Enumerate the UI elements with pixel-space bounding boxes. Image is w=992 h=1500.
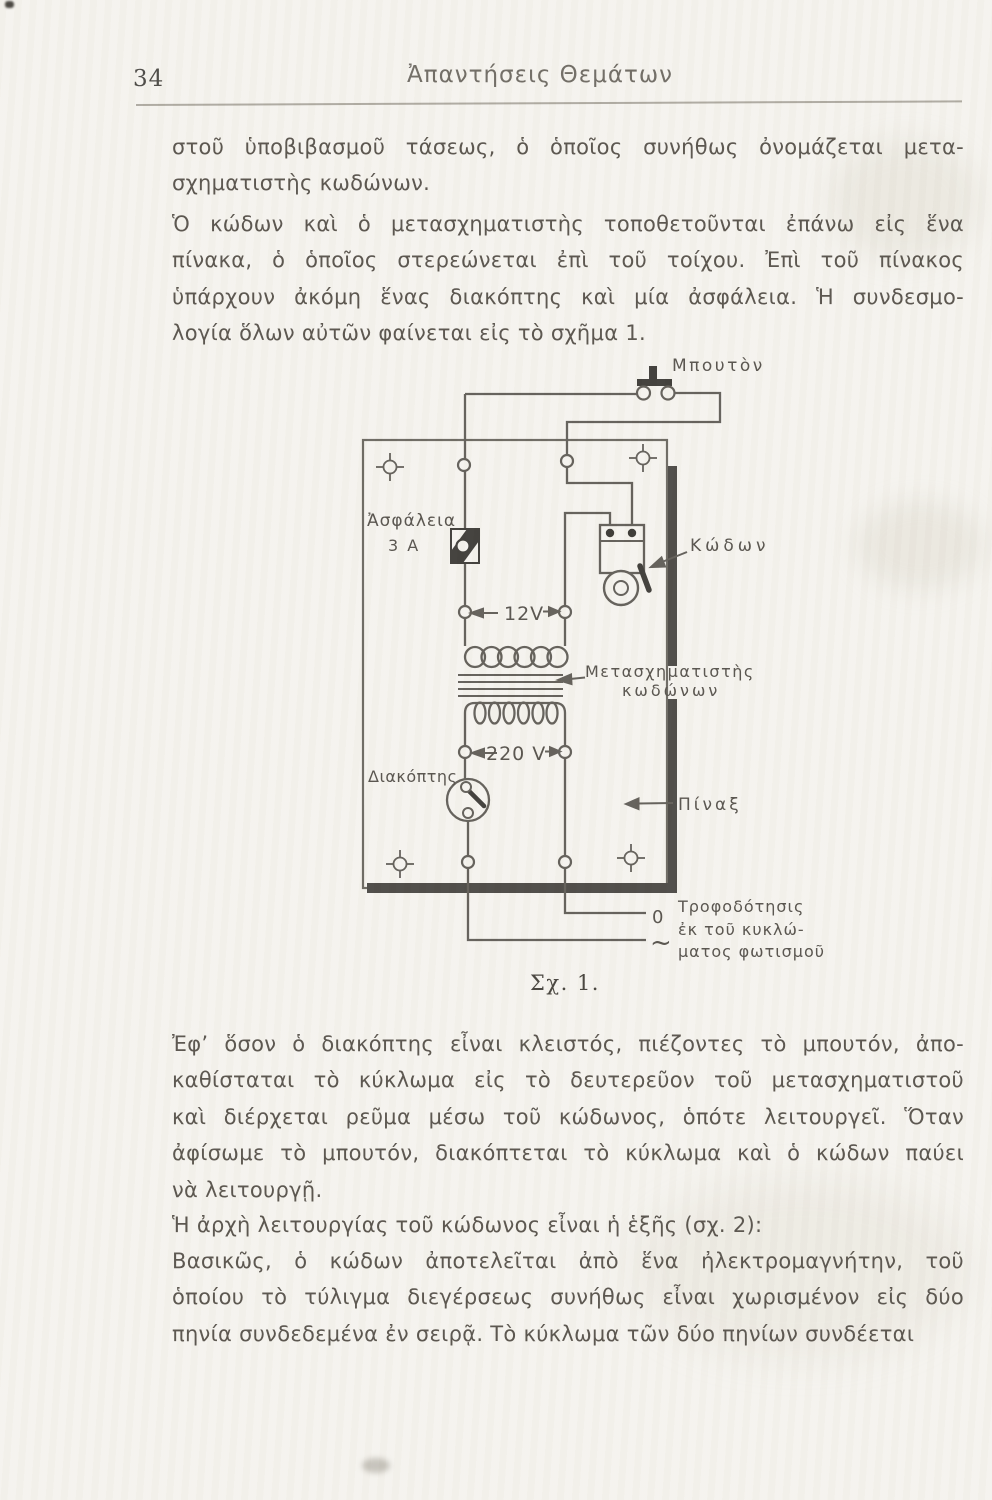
label-supply-line1: Τροφοδότησις xyxy=(677,897,804,916)
fuse-symbol xyxy=(451,529,479,563)
screw-icon xyxy=(629,444,657,472)
label-switch: Διακόπτης xyxy=(368,767,457,786)
screw-icon xyxy=(386,850,414,878)
label-primary-voltage: 220 V xyxy=(486,743,546,765)
scan-smudge xyxy=(362,1458,390,1473)
transformer-symbol xyxy=(458,647,568,724)
transformer-core xyxy=(458,675,563,696)
panel-edge-right-lower xyxy=(668,699,677,892)
label-supply-line3: ματος φωτισμοῦ xyxy=(678,942,825,961)
text-line: ὁποίου τὸ τύλιγμα διεγέρσεως συνήθως εἶν… xyxy=(172,1279,964,1315)
text-line: καθίσταται τὸ κύκλωμα εἰς τὸ δευτερεῦον … xyxy=(172,1062,964,1098)
text-line: Ἐφ’ ὅσον ὁ διακόπτης εἶναι κλειστός, πιέ… xyxy=(172,1026,964,1062)
text-line: καὶ διέρχεται ρεῦμα μέσω τοῦ κώδωνος, ὁπ… xyxy=(172,1099,964,1135)
label-secondary-voltage: 12V xyxy=(504,603,544,625)
text-line: στοῦ ὑποβιβασμοῦ τάσεως, ὁ ὁποῖος συνήθω… xyxy=(172,129,964,165)
label-fuse: Ἀσφάλεια xyxy=(367,511,456,531)
book-page: 34 Ἀπαντήσεις Θεμάτων στοῦ ὑποβιβασμοῦ τ… xyxy=(0,0,992,1500)
secondary-coil xyxy=(465,647,568,667)
label-supply-line2: ἐκ τοῦ κυκλώ- xyxy=(678,920,805,939)
paragraph-5: Βασικῶς, ὁ κώδων ἀποτελεῖται ἀπὸ ἕνα ἠλε… xyxy=(172,1243,964,1352)
text-line: Ἡ ἀρχὴ λειτουργίας τοῦ κώδωνος εἶναι ἡ ἑ… xyxy=(172,1207,964,1243)
paragraph-2: Ὁ κώδων καὶ ὁ μετασχηματιστὴς τοποθετοῦν… xyxy=(172,206,964,352)
label-transformer-line2: κωδώνων xyxy=(622,681,720,700)
page-number: 34 xyxy=(133,66,164,92)
running-header: Ἀπαντήσεις Θεμάτων xyxy=(330,62,750,88)
label-terminal-zero: 0 xyxy=(652,907,663,928)
label-transformer-line1: Μετασχηματιστὴς xyxy=(585,662,755,681)
label-fuse-rating: 3 A xyxy=(388,536,420,555)
text-line: Βασικῶς, ὁ κώδων ἀποτελεῖται ἀπὸ ἕνα ἠλε… xyxy=(172,1243,964,1279)
text-line: νὰ λειτουργῇ. xyxy=(172,1172,964,1208)
scan-artifact-corner xyxy=(5,1,14,8)
panel-edge-right-upper xyxy=(668,466,677,666)
paragraph-1: στοῦ ὑποβιβασμοῦ τάσεως, ὁ ὁποῖος συνήθω… xyxy=(172,129,964,202)
text-line: Ὁ κώδων καὶ ὁ μετασχηματιστὴς τοποθετοῦν… xyxy=(172,206,964,242)
paragraph-3: Ἐφ’ ὅσον ὁ διακόπτης εἶναι κλειστός, πιέ… xyxy=(172,1026,964,1208)
push-button-symbol xyxy=(637,366,675,400)
label-bell: Κώδων xyxy=(690,536,770,556)
text-line: λογία ὅλων αὐτῶν φαίνεται εἰς τὸ σχῆμα 1… xyxy=(172,315,964,351)
text-line: πίνακα, ὁ ὁποῖος στερεώνεται ἐπὶ τοῦ τοί… xyxy=(172,242,964,278)
bell-symbol xyxy=(600,525,649,605)
label-button: Μπουτὸν xyxy=(672,356,765,376)
label-terminal-phase: ~ xyxy=(650,928,672,958)
screw-icon xyxy=(376,453,404,481)
text-line: ἀφίσωμε τὸ μπουτόν, διακόπτεται τὸ κύκλω… xyxy=(172,1135,964,1171)
label-panel: Πίναξ xyxy=(678,795,742,815)
figure-caption: Σχ. 1. xyxy=(500,971,630,995)
circuit-diagram-figure-1: Μπουτὸν Ἀσφάλεια 3 A 12V 220 V Κώδων Μετ… xyxy=(330,350,970,1010)
header-rule xyxy=(136,100,962,106)
text-line: ὑπάρχουν ἀκόμη ἕνας διακόπτης καὶ μία ἀσ… xyxy=(172,279,964,315)
screw-icon xyxy=(617,844,645,872)
bell-gong xyxy=(604,571,638,605)
text-line: σχηματιστὴς κωδώνων. xyxy=(172,165,964,201)
primary-coil xyxy=(475,703,558,724)
panel-edge-bottom xyxy=(367,883,677,893)
paragraph-4: Ἡ ἀρχὴ λειτουργίας τοῦ κώδωνος εἶναι ἡ ἑ… xyxy=(172,1207,964,1243)
text-line: πηνία συνδεδεμένα ἐν σειρᾷ. Τὸ κύκλωμα τ… xyxy=(172,1316,964,1352)
